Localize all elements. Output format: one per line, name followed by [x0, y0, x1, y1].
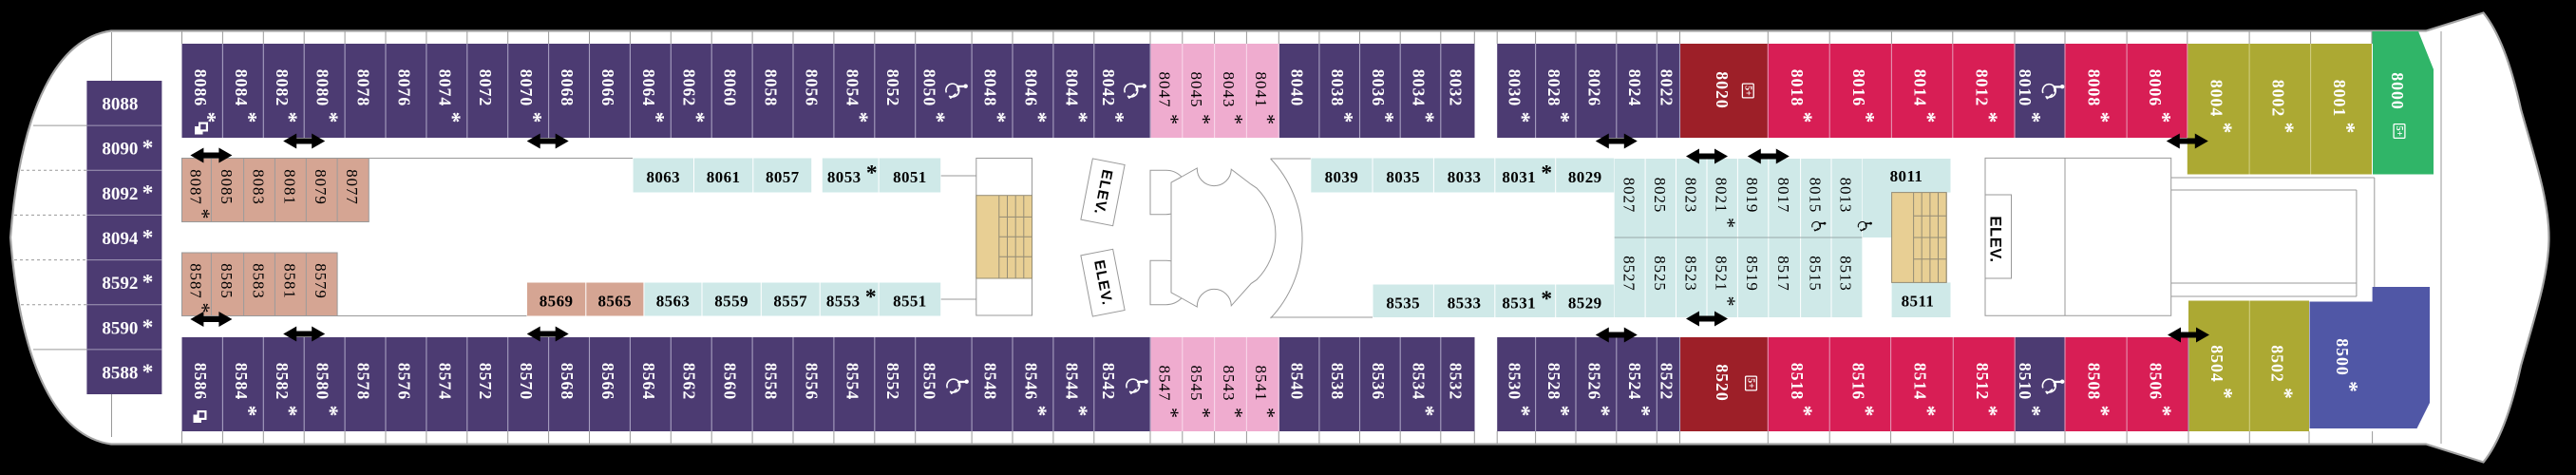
svg-text:*: *	[142, 180, 154, 205]
svg-text:8556: 8556	[802, 363, 821, 401]
svg-text:8047: 8047	[1155, 72, 1173, 108]
svg-text:*: *	[2089, 112, 2113, 123]
svg-text:8583: 8583	[250, 263, 268, 299]
svg-text:8518: 8518	[1788, 363, 1807, 401]
svg-text:8584: 8584	[232, 363, 251, 401]
svg-text:*: *	[684, 112, 709, 123]
svg-text:8504: 8504	[2207, 345, 2226, 383]
svg-text:8520: 8520	[1713, 364, 1732, 402]
svg-text:8534: 8534	[1410, 363, 1429, 401]
svg-text:8550: 8550	[920, 363, 939, 401]
svg-text:8000: 8000	[2388, 72, 2407, 110]
svg-text:8522: 8522	[1657, 363, 1676, 401]
svg-text:8563: 8563	[656, 293, 691, 311]
svg-text:*: *	[1853, 112, 1878, 123]
svg-text:8062: 8062	[680, 69, 699, 107]
svg-text:8013: 8013	[1837, 178, 1855, 214]
svg-text:*: *	[865, 285, 877, 310]
svg-text:*: *	[2150, 406, 2175, 417]
svg-text:*: *	[1541, 161, 1552, 186]
svg-text:8079: 8079	[312, 169, 330, 205]
svg-text:8517: 8517	[1774, 256, 1792, 292]
svg-text:8027: 8027	[1619, 178, 1638, 214]
svg-text:*: *	[1509, 112, 1534, 123]
svg-text:8017: 8017	[1774, 178, 1792, 214]
svg-text:8022: 8022	[1657, 69, 1676, 107]
svg-text:*: *	[317, 112, 342, 123]
svg-text:8588: 8588	[102, 363, 138, 383]
svg-text:*: *	[1977, 406, 2001, 417]
svg-text:*: *	[1915, 112, 1940, 123]
svg-text:*: *	[2020, 406, 2045, 417]
svg-text:*: *	[1256, 114, 1279, 124]
svg-text:*: *	[1373, 112, 1397, 123]
svg-text:8060: 8060	[721, 69, 740, 107]
svg-text:8033: 8033	[1448, 168, 1482, 186]
svg-text:ELEV.: ELEV.	[1987, 216, 2004, 262]
svg-text:8020: 8020	[1713, 71, 1732, 109]
svg-text:8006: 8006	[2146, 69, 2165, 107]
svg-text:*: *	[1509, 406, 1534, 417]
svg-text:*: *	[1915, 406, 1940, 417]
svg-text:8500: 8500	[2333, 338, 2352, 376]
svg-text:8586: 8586	[191, 363, 210, 401]
svg-text:*: *	[1067, 112, 1091, 123]
svg-text:*: *	[643, 112, 668, 123]
svg-text:*: *	[1192, 408, 1216, 418]
svg-text:8559: 8559	[714, 293, 748, 311]
svg-text:8565: 8565	[597, 293, 632, 311]
svg-text:*: *	[2334, 123, 2358, 134]
svg-text:8052: 8052	[883, 69, 902, 107]
svg-text:8533: 8533	[1448, 294, 1482, 312]
svg-text:8510: 8510	[2016, 363, 2035, 401]
svg-text:8038: 8038	[1328, 69, 1347, 107]
svg-text:8578: 8578	[354, 363, 373, 401]
svg-text:8029: 8029	[1568, 168, 1602, 186]
svg-text:8574: 8574	[435, 363, 454, 401]
svg-text:*: *	[1224, 114, 1248, 124]
svg-text:8569: 8569	[540, 293, 574, 311]
svg-text:*: *	[847, 112, 872, 123]
svg-text:*: *	[1548, 112, 1573, 123]
svg-text:8552: 8552	[883, 363, 902, 401]
svg-text:*: *	[2273, 123, 2298, 134]
svg-text:8088: 8088	[102, 95, 138, 115]
svg-text:*: *	[985, 112, 1010, 123]
svg-text:*: *	[1977, 112, 2001, 123]
svg-text:8532: 8532	[1447, 363, 1466, 401]
svg-text:8078: 8078	[354, 69, 373, 107]
svg-text:8051: 8051	[893, 168, 927, 186]
svg-text:*: *	[1067, 406, 1091, 417]
svg-text:8087: 8087	[186, 169, 204, 205]
svg-text:8044: 8044	[1062, 69, 1081, 107]
svg-text:*: *	[521, 112, 546, 123]
svg-text:*: *	[276, 112, 301, 123]
svg-text:*: *	[2272, 388, 2297, 399]
svg-text:*: *	[1853, 406, 1878, 417]
svg-text:8502: 8502	[2268, 345, 2287, 383]
svg-text:8004: 8004	[2207, 80, 2226, 118]
svg-text:8512: 8512	[1973, 363, 1992, 401]
svg-text:8541: 8541	[1252, 366, 1270, 402]
svg-text:8579: 8579	[312, 263, 330, 299]
svg-text:8025: 8025	[1651, 178, 1669, 214]
svg-text:8032: 8032	[1447, 69, 1466, 107]
svg-text:8581: 8581	[280, 263, 298, 299]
svg-text:*: *	[1413, 406, 1438, 417]
svg-text:8082: 8082	[273, 69, 292, 107]
svg-text:8508: 8508	[2085, 363, 2104, 401]
svg-text:8054: 8054	[843, 69, 862, 107]
svg-text:8528: 8528	[1544, 363, 1563, 401]
svg-text:8590: 8590	[102, 318, 138, 338]
svg-text:8525: 8525	[1651, 256, 1669, 292]
svg-text:*: *	[142, 360, 154, 385]
svg-text:*: *	[195, 112, 219, 123]
svg-text:8530: 8530	[1505, 363, 1524, 401]
svg-text:8570: 8570	[517, 363, 536, 401]
svg-text:8580: 8580	[313, 363, 332, 401]
svg-text:*: *	[2212, 388, 2237, 399]
svg-text:8030: 8030	[1505, 69, 1524, 107]
svg-text:8531: 8531	[1502, 294, 1536, 312]
svg-text:8587: 8587	[186, 263, 204, 299]
svg-text:*: *	[1630, 406, 1655, 417]
svg-text:8568: 8568	[558, 363, 577, 401]
svg-text:*: *	[236, 112, 260, 123]
svg-text:8085: 8085	[218, 169, 236, 205]
svg-text:*: *	[1160, 408, 1184, 418]
svg-text:*: *	[924, 112, 949, 123]
svg-text:8572: 8572	[476, 363, 495, 401]
svg-text:8056: 8056	[802, 69, 821, 107]
svg-text:8544: 8544	[1062, 363, 1081, 401]
svg-text:*: *	[2211, 123, 2236, 134]
svg-text:8023: 8023	[1681, 178, 1699, 214]
svg-text:8557: 8557	[773, 293, 807, 311]
svg-text:8558: 8558	[762, 363, 781, 401]
svg-text:8548: 8548	[981, 363, 1000, 401]
svg-text:*: *	[1413, 112, 1438, 123]
svg-text:8585: 8585	[218, 263, 236, 299]
svg-text:8090: 8090	[102, 140, 138, 160]
svg-text:8523: 8523	[1681, 256, 1699, 292]
svg-text:*: *	[142, 226, 154, 251]
svg-text:8519: 8519	[1743, 256, 1761, 292]
svg-text:8546: 8546	[1021, 363, 1040, 401]
svg-text:*: *	[1026, 406, 1051, 417]
svg-text:8542: 8542	[1099, 363, 1118, 401]
svg-text:8080: 8080	[313, 69, 332, 107]
svg-text:8526: 8526	[1584, 363, 1603, 401]
svg-text:*: *	[1103, 112, 1127, 123]
svg-text:8034: 8034	[1410, 69, 1429, 107]
svg-text:8064: 8064	[639, 69, 658, 107]
svg-text:8074: 8074	[435, 69, 454, 107]
svg-text:*: *	[1716, 218, 1740, 228]
svg-text:8063: 8063	[646, 168, 680, 186]
svg-text:8553: 8553	[826, 293, 861, 311]
svg-text:8001: 8001	[2330, 80, 2349, 118]
svg-text:8076: 8076	[394, 69, 413, 107]
svg-text:*: *	[1160, 114, 1184, 124]
svg-text:8529: 8529	[1568, 294, 1602, 312]
svg-text:8035: 8035	[1386, 168, 1420, 186]
svg-text:8066: 8066	[598, 69, 617, 107]
svg-text:*: *	[1716, 296, 1740, 307]
svg-text:8015: 8015	[1806, 178, 1824, 214]
svg-text:8016: 8016	[1849, 69, 1868, 107]
svg-text:8021: 8021	[1713, 178, 1731, 214]
svg-text:*: *	[317, 406, 342, 417]
svg-text:8554: 8554	[843, 363, 862, 401]
svg-text:8050: 8050	[920, 69, 939, 107]
svg-text:8506: 8506	[2147, 363, 2166, 401]
svg-text:8527: 8527	[1619, 256, 1638, 292]
svg-text:8536: 8536	[1369, 363, 1388, 401]
svg-text:8551: 8551	[893, 293, 927, 311]
svg-text:*: *	[1791, 406, 1816, 417]
svg-text:8057: 8057	[766, 168, 800, 186]
svg-text:8094: 8094	[102, 229, 139, 249]
svg-text:8046: 8046	[1021, 69, 1040, 107]
svg-text:*: *	[142, 271, 154, 295]
svg-text:*: *	[440, 112, 464, 123]
svg-text:8011: 8011	[1890, 167, 1923, 185]
svg-text:8545: 8545	[1187, 366, 1205, 402]
svg-text:*: *	[866, 161, 878, 186]
svg-text:8081: 8081	[280, 169, 298, 205]
svg-text:8061: 8061	[707, 168, 741, 186]
svg-text:8048: 8048	[981, 69, 1000, 107]
svg-text:8043: 8043	[1220, 72, 1238, 108]
svg-text:*: *	[2020, 112, 2045, 123]
svg-text:8072: 8072	[476, 69, 495, 107]
svg-text:8045: 8045	[1187, 72, 1205, 108]
svg-text:*: *	[2338, 381, 2362, 392]
svg-text:8582: 8582	[273, 363, 292, 401]
svg-text:8083: 8083	[250, 169, 268, 205]
svg-text:8516: 8516	[1848, 363, 1867, 401]
svg-text:8086: 8086	[191, 69, 210, 107]
svg-text:8547: 8547	[1155, 366, 1173, 402]
svg-text:8008: 8008	[2085, 69, 2104, 107]
svg-text:*: *	[276, 406, 301, 417]
svg-text:8514: 8514	[1911, 363, 1930, 401]
svg-text:8031: 8031	[1502, 168, 1536, 186]
svg-text:*: *	[1791, 112, 1816, 123]
svg-text:8560: 8560	[721, 363, 740, 401]
svg-text:8024: 8024	[1625, 69, 1644, 107]
svg-text:*: *	[142, 136, 154, 161]
svg-text:8540: 8540	[1288, 363, 1307, 401]
svg-text:8092: 8092	[102, 184, 138, 204]
svg-text:*: *	[2089, 406, 2113, 417]
svg-text:5+: 5+	[1746, 378, 1756, 389]
svg-text:8077: 8077	[343, 169, 361, 205]
svg-text:8576: 8576	[394, 363, 413, 401]
svg-text:8039: 8039	[1325, 168, 1359, 186]
svg-text:8041: 8041	[1252, 72, 1270, 108]
svg-text:8026: 8026	[1584, 69, 1603, 107]
svg-text:*: *	[1192, 114, 1216, 124]
svg-text:8566: 8566	[598, 363, 617, 401]
svg-text:8040: 8040	[1288, 69, 1307, 107]
svg-text:8010: 8010	[2016, 69, 2035, 107]
svg-text:*: *	[1026, 112, 1051, 123]
svg-text:8036: 8036	[1369, 69, 1388, 107]
svg-text:8521: 8521	[1713, 256, 1731, 292]
svg-text:8592: 8592	[102, 274, 138, 294]
svg-text:8543: 8543	[1220, 366, 1238, 402]
svg-text:*: *	[1541, 287, 1552, 312]
svg-text:8511: 8511	[1902, 293, 1935, 311]
svg-text:8084: 8084	[232, 69, 251, 107]
svg-text:8070: 8070	[517, 69, 536, 107]
svg-text:8538: 8538	[1328, 363, 1347, 401]
svg-text:8515: 8515	[1806, 256, 1824, 292]
svg-text:8562: 8562	[680, 363, 699, 401]
svg-text:8564: 8564	[639, 363, 658, 401]
svg-text:8018: 8018	[1788, 69, 1807, 107]
svg-text:8012: 8012	[1972, 69, 1991, 107]
svg-text:5+: 5+	[1742, 85, 1752, 96]
svg-text:8019: 8019	[1743, 178, 1761, 214]
svg-text:8513: 8513	[1837, 256, 1855, 292]
svg-text:*: *	[236, 406, 260, 417]
svg-text:*: *	[2150, 112, 2174, 123]
svg-text:8002: 8002	[2268, 80, 2287, 118]
svg-text:8524: 8524	[1625, 363, 1644, 401]
svg-text:5+: 5+	[2394, 126, 2404, 137]
svg-text:8053: 8053	[827, 168, 862, 186]
svg-text:*: *	[142, 315, 154, 340]
svg-text:8058: 8058	[762, 69, 781, 107]
svg-text:8535: 8535	[1386, 294, 1420, 312]
svg-text:*: *	[1256, 408, 1279, 418]
svg-text:8042: 8042	[1099, 69, 1118, 107]
svg-text:*: *	[1224, 408, 1248, 418]
svg-text:*: *	[1548, 406, 1573, 417]
svg-text:*: *	[1333, 112, 1357, 123]
svg-text:8014: 8014	[1911, 69, 1930, 107]
svg-text:8068: 8068	[558, 69, 577, 107]
svg-text:*: *	[1589, 406, 1614, 417]
svg-text:8028: 8028	[1544, 69, 1563, 107]
